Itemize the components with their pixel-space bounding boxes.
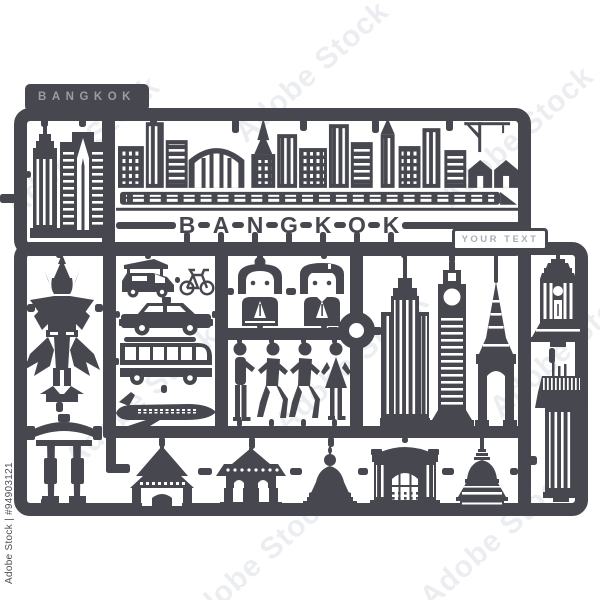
- letter-a: A: [210, 211, 232, 239]
- airplane-icon: [116, 392, 216, 426]
- golden-chedi-stupa-icon: [454, 436, 510, 506]
- grand-gate-icon: [368, 442, 442, 506]
- walking-man-icon: [257, 342, 289, 422]
- sprue-stub: [0, 194, 16, 203]
- bicycle-icon: [179, 264, 215, 296]
- sprue-stub: [358, 468, 368, 475]
- sprue-bar: [103, 250, 116, 432]
- baiyoke-style-tower-icon: [380, 256, 430, 428]
- sprue-connector: [198, 222, 210, 228]
- temple-spire-gate-icon: [474, 282, 518, 428]
- skyscraper-tower-icon: [30, 124, 60, 238]
- thai-temple-arch-icon: [126, 446, 198, 506]
- clock-tower-icon: [429, 262, 475, 428]
- sprue-stub: [549, 348, 555, 363]
- letter-b: B: [176, 211, 198, 239]
- twin-spire-building-icon: [60, 124, 106, 238]
- sprue-stub: [442, 468, 454, 475]
- sprue-stub: [494, 250, 498, 283]
- stock-id-watermark: Adobe Stock | #94903121: [4, 462, 15, 584]
- sprue-connector: [334, 222, 346, 228]
- victory-column-icon: [535, 362, 587, 502]
- letter-n: N: [244, 211, 266, 239]
- sprue-connector: [232, 222, 244, 228]
- standing-man-icon: [227, 342, 255, 422]
- your-text-tab: YOUR TEXT: [452, 228, 548, 251]
- sprue-connector: [368, 222, 380, 228]
- giant-swing-icon: [26, 410, 102, 504]
- bangkok-title-tab: BANGKOK: [25, 84, 149, 111]
- tiered-pavilion-icon: [212, 448, 290, 506]
- thai-man-wai-greeting-icon: [295, 256, 349, 326]
- sprue-stub: [510, 468, 518, 475]
- sprue-connector: [266, 222, 278, 228]
- sprue-stub: [198, 468, 212, 475]
- model-kit-illustration: Adobe Stock Adobe Stock Adobe Stock Adob…: [0, 0, 600, 600]
- tuk-tuk-icon: [120, 257, 176, 299]
- seated-buddha-icon: [302, 446, 358, 504]
- thai-woman-wai-greeting-icon: [233, 256, 287, 326]
- letter-g: G: [278, 211, 300, 239]
- letter-k: K: [312, 211, 334, 239]
- walking-man-2-icon: [289, 342, 321, 422]
- letter-k2: K: [380, 211, 402, 239]
- sprue-connector: [300, 222, 312, 228]
- bangkok-skyline-icon: [116, 114, 520, 212]
- sprue-bar: [116, 222, 176, 229]
- walking-woman-icon: [321, 342, 351, 422]
- wat-arun-prang-icon: [530, 250, 586, 350]
- yaksha-giant-guardian-icon: [20, 254, 104, 402]
- sprue-ring: [338, 312, 375, 349]
- sprue-stub: [290, 468, 302, 475]
- city-bus-icon: [118, 337, 214, 387]
- taxi-car-icon: [119, 297, 213, 339]
- letter-o: O: [346, 211, 368, 239]
